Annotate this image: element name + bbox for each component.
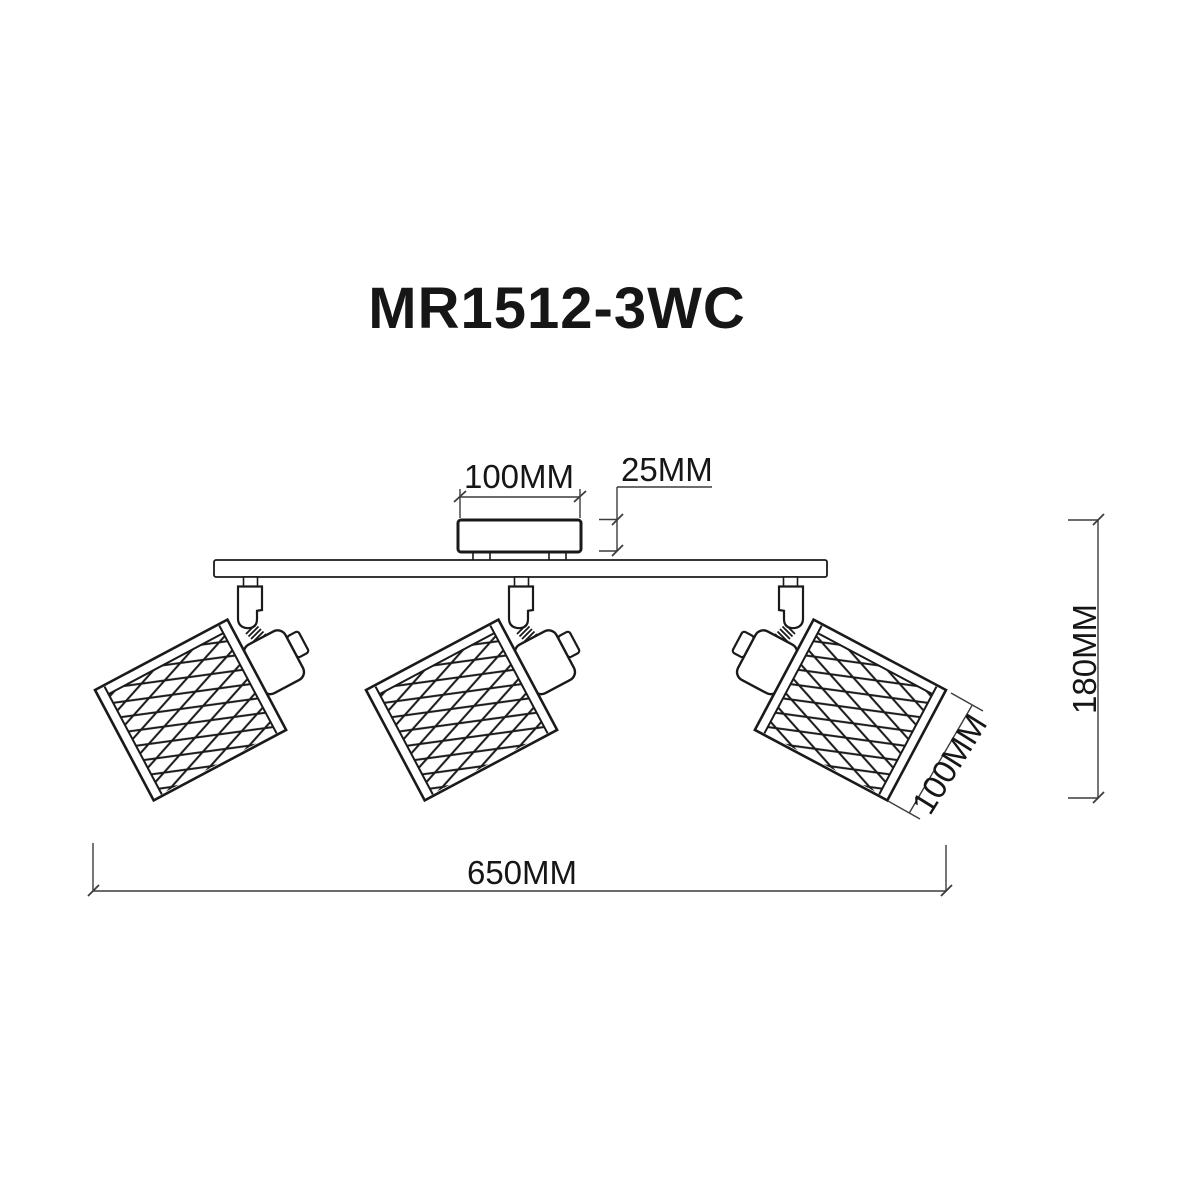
lamp-unit-right xyxy=(705,577,946,800)
dimension-label-fixture-height: 180MM xyxy=(1066,604,1103,714)
drawing-page: MR1512-3WC 100MM 25MM xyxy=(0,0,1200,1200)
model-number: MR1512-3WC xyxy=(368,276,745,341)
dimension-label-canopy-width: 100MM xyxy=(464,458,574,495)
dimension-label-fixture-length: 650MM xyxy=(467,854,577,891)
lamp-unit-left xyxy=(95,577,336,800)
mounting-rail xyxy=(214,560,827,577)
fixture-technical-drawing: MR1512-3WC 100MM 25MM xyxy=(0,0,1200,1200)
dimension-canopy-height xyxy=(599,487,712,556)
lamp-unit-middle xyxy=(366,577,607,800)
canopy-body xyxy=(458,520,581,552)
dimension-label-canopy-height: 25MM xyxy=(621,451,713,488)
ceiling-canopy xyxy=(458,520,581,561)
